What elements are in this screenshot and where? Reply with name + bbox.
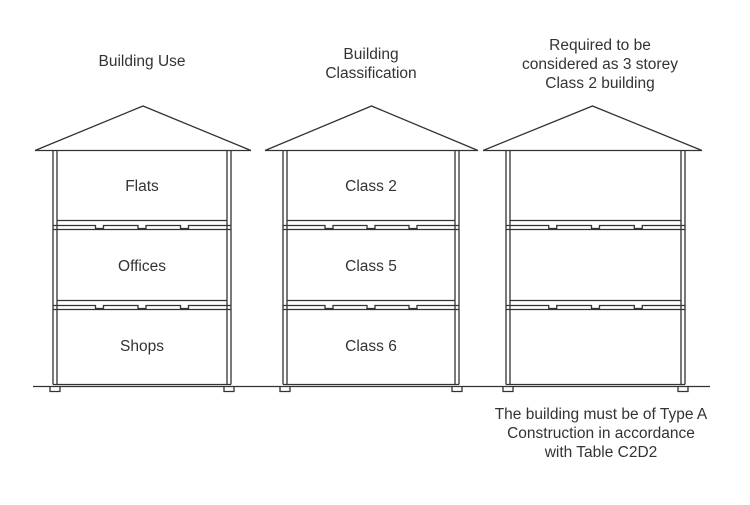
floor-label: Offices — [52, 257, 232, 277]
floor-label: Class 2 — [281, 177, 461, 197]
floor-label: Flats — [52, 177, 232, 197]
floor-label — [505, 337, 686, 357]
building-use-title: Building Use — [42, 52, 242, 71]
floor-label: Class 6 — [281, 337, 461, 357]
building-classification-title: Building Classification — [271, 45, 471, 83]
footnote: The building must be of Type A Construct… — [480, 405, 722, 462]
floor-label: Shops — [52, 337, 232, 357]
floor-label — [505, 257, 686, 277]
floor-label — [505, 177, 686, 197]
diagram-canvas: Building Use Building Classification Req… — [0, 0, 750, 505]
required-class-2-title: Required to be considered as 3 storey Cl… — [495, 36, 705, 93]
floor-label: Class 5 — [281, 257, 461, 277]
